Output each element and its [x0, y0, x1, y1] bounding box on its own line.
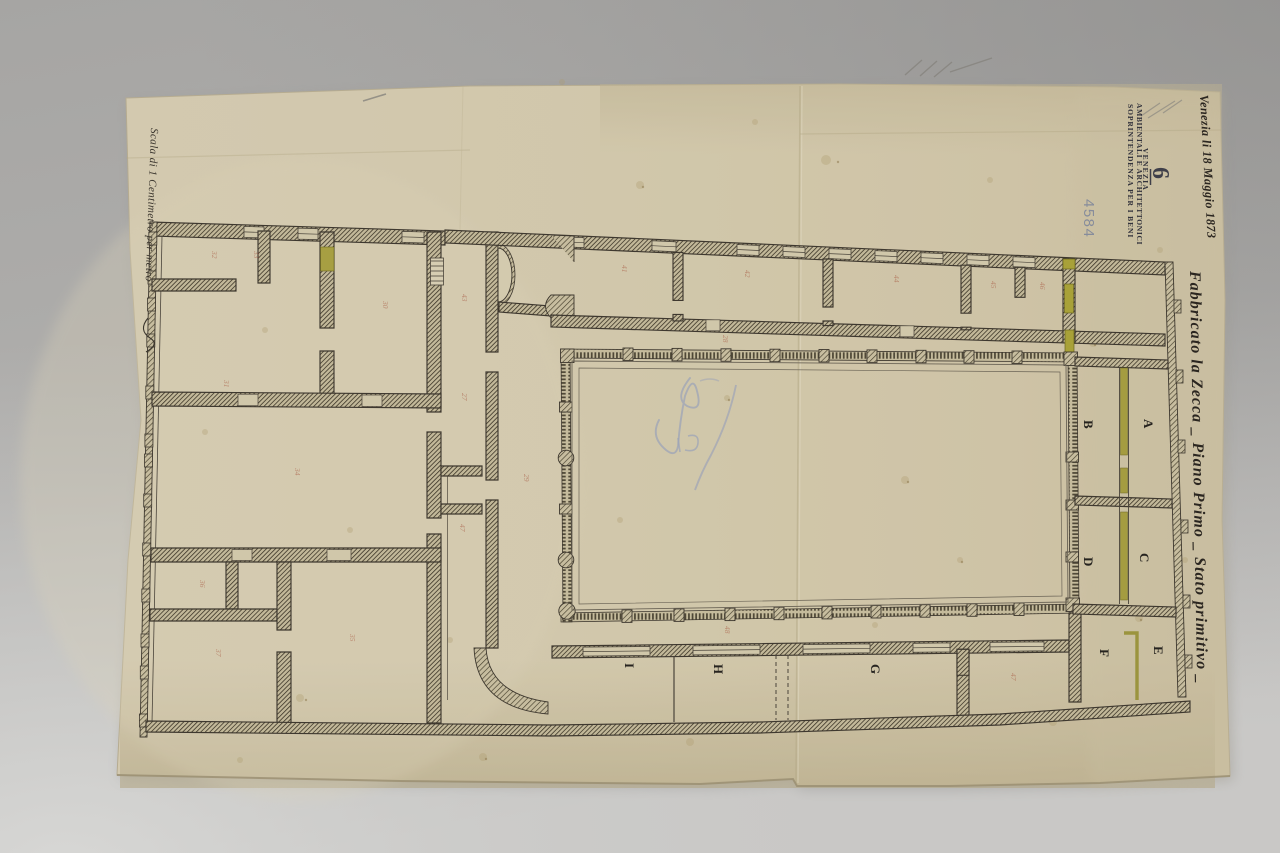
svg-text:E: E	[1151, 646, 1166, 655]
svg-text:41: 41	[620, 265, 629, 273]
svg-text:35: 35	[348, 633, 357, 642]
svg-text:44: 44	[892, 275, 901, 283]
svg-text:42: 42	[743, 270, 752, 278]
svg-text:27: 27	[460, 393, 469, 401]
svg-text:H: H	[711, 664, 726, 674]
svg-text:31: 31	[222, 379, 231, 388]
svg-text:28: 28	[721, 335, 730, 343]
svg-text:47: 47	[1009, 673, 1018, 681]
svg-text:43: 43	[460, 294, 469, 302]
svg-text:32: 32	[210, 250, 219, 259]
svg-text:G: G	[868, 664, 883, 674]
svg-text:37: 37	[214, 648, 223, 657]
svg-text:34: 34	[293, 467, 302, 476]
svg-text:F: F	[1097, 649, 1112, 657]
svg-text:47: 47	[458, 524, 467, 532]
svg-text:D: D	[1081, 557, 1096, 566]
svg-text:45: 45	[989, 281, 998, 289]
svg-text:30: 30	[381, 300, 390, 309]
svg-text:I: I	[622, 663, 637, 668]
svg-text:48: 48	[723, 626, 732, 634]
svg-text:46: 46	[1038, 282, 1047, 290]
svg-text:B: B	[1081, 420, 1096, 429]
svg-text:36: 36	[198, 579, 207, 588]
svg-text:A: A	[1141, 419, 1156, 429]
svg-text:29: 29	[522, 474, 531, 482]
svg-text:C: C	[1137, 553, 1152, 562]
svg-text:SOPRINTENDENZA PER I BENI: SOPRINTENDENZA PER I BENI	[1126, 104, 1135, 238]
svg-text:33: 33	[252, 250, 261, 259]
svg-text:4584: 4584	[1080, 199, 1097, 238]
